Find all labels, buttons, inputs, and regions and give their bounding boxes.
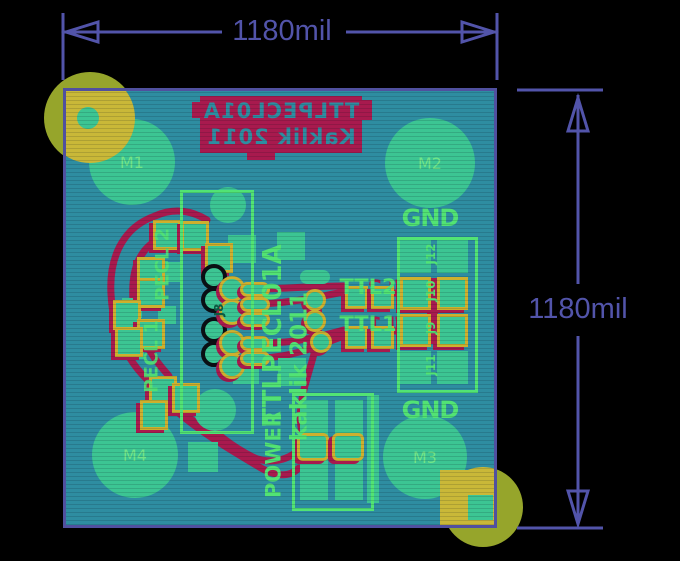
silkscreen-back-line2: Kaklik 2011	[200, 125, 362, 149]
ttl2-label[interactable]: TTL2	[330, 277, 406, 298]
smd-pad[interactable]	[115, 327, 143, 357]
pcb-board[interactable]: M1 M2 M3 M4 TTLPECL01A Kaklik 2011	[63, 88, 497, 528]
refdes-j12[interactable]: J12	[425, 234, 437, 274]
silk-title[interactable]: TTLPECL01A	[260, 232, 286, 438]
gnd-top-label[interactable]: GND	[400, 206, 460, 230]
plated-pad[interactable]	[310, 331, 332, 353]
fiducial-top-left-dot	[77, 107, 99, 129]
fiducial-bottom-right-dot	[468, 495, 493, 520]
silkscreen-back-block[interactable]: TTLPECL01A Kaklik 2011	[200, 96, 362, 153]
pecl1-label[interactable]: PECL 1	[143, 314, 162, 400]
silkscreen-back-tab-bottom	[247, 150, 275, 160]
smd-pad[interactable]	[140, 400, 168, 430]
power-label[interactable]: POWER	[264, 409, 285, 501]
refdes-j9[interactable]: J9	[425, 308, 437, 348]
ttl1-label[interactable]: TTL1	[330, 314, 406, 335]
silkscreen-back-tab-left	[192, 102, 201, 118]
pecl2-label[interactable]: PECL 2	[154, 222, 173, 308]
silkscreen-back-line1: TTLPECL01A	[200, 99, 362, 123]
refdes-j10[interactable]: J10	[425, 271, 437, 311]
refdes-j11[interactable]: J11	[425, 345, 437, 385]
copper-pad[interactable]	[188, 442, 218, 472]
silkscreen-back-tab-right	[361, 100, 372, 120]
gnd-bottom-label[interactable]: GND	[400, 398, 460, 422]
silk-credit[interactable]: kaklik 2011	[289, 242, 312, 492]
pcb-viewer-canvas: 1180mil 1180mil	[0, 0, 680, 561]
refdes-j8[interactable]: J8	[213, 290, 225, 330]
